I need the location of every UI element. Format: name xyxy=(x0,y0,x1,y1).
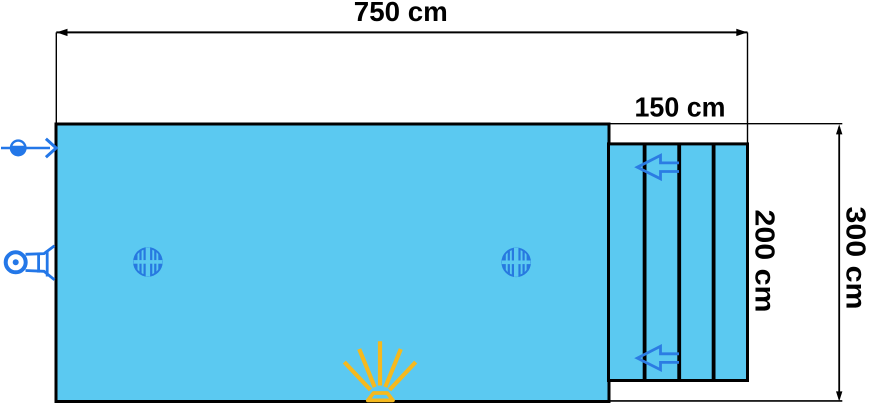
svg-text:750 cm: 750 cm xyxy=(354,0,448,27)
svg-text:200 cm: 200 cm xyxy=(750,210,781,313)
svg-text:150 cm: 150 cm xyxy=(635,92,726,123)
svg-text:300 cm: 300 cm xyxy=(840,207,871,310)
